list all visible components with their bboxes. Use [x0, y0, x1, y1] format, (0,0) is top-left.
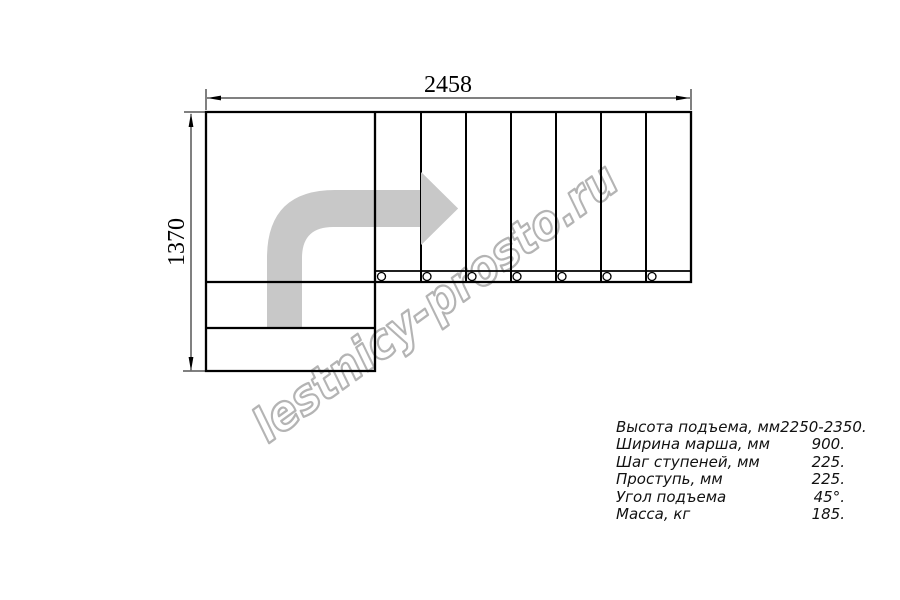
- spec-value: 225.: [812, 454, 845, 471]
- baluster-circle: [648, 273, 656, 281]
- baluster-circle: [378, 273, 386, 281]
- spec-value: 185.: [812, 506, 845, 523]
- spec-value: 225.: [812, 471, 845, 488]
- dim-arrow-up-icon: [189, 113, 194, 127]
- spec-value: 2250-2350.: [780, 419, 867, 436]
- spec-row: Ширина марша, мм 900.: [616, 436, 845, 453]
- spec-label: Угол подъема: [616, 489, 726, 506]
- spec-row: Масса, кг 185.: [616, 506, 845, 523]
- dimension-height-label: 1370: [164, 218, 190, 266]
- spec-label: Высота подъема, мм: [616, 419, 780, 436]
- baluster-circle: [423, 273, 431, 281]
- spec-label: Ширина марша, мм: [616, 436, 770, 453]
- dim-arrow-right-icon: [676, 96, 690, 101]
- dimension-width-label: 2458: [424, 72, 472, 98]
- baluster-circle: [468, 273, 476, 281]
- dimension-width: 2458: [206, 72, 691, 110]
- spec-row: Угол подъема 45°.: [616, 489, 845, 506]
- spec-value: 900.: [812, 436, 845, 453]
- spec-row: Шаг ступеней, мм 225.: [616, 454, 845, 471]
- spec-label: Проступь, мм: [616, 471, 723, 488]
- spec-row: Высота подъема, мм 2250-2350.: [616, 419, 845, 436]
- stair-drawing-page: lestnicy-prosto.ru 2458: [0, 0, 900, 600]
- dimension-height: 1370: [164, 112, 205, 371]
- dim-arrow-down-icon: [189, 357, 194, 371]
- spec-label: Шаг ступеней, мм: [616, 454, 760, 471]
- spec-row: Проступь, мм 225.: [616, 471, 845, 488]
- spec-table: Высота подъема, мм 2250-2350. Ширина мар…: [616, 419, 845, 523]
- baluster-circle: [603, 273, 611, 281]
- baluster-circle: [513, 273, 521, 281]
- direction-arrow-head: [421, 172, 458, 245]
- dim-arrow-left-icon: [207, 96, 221, 101]
- spec-value: 45°.: [814, 489, 845, 506]
- baluster-circle: [558, 273, 566, 281]
- spec-label: Масса, кг: [616, 506, 690, 523]
